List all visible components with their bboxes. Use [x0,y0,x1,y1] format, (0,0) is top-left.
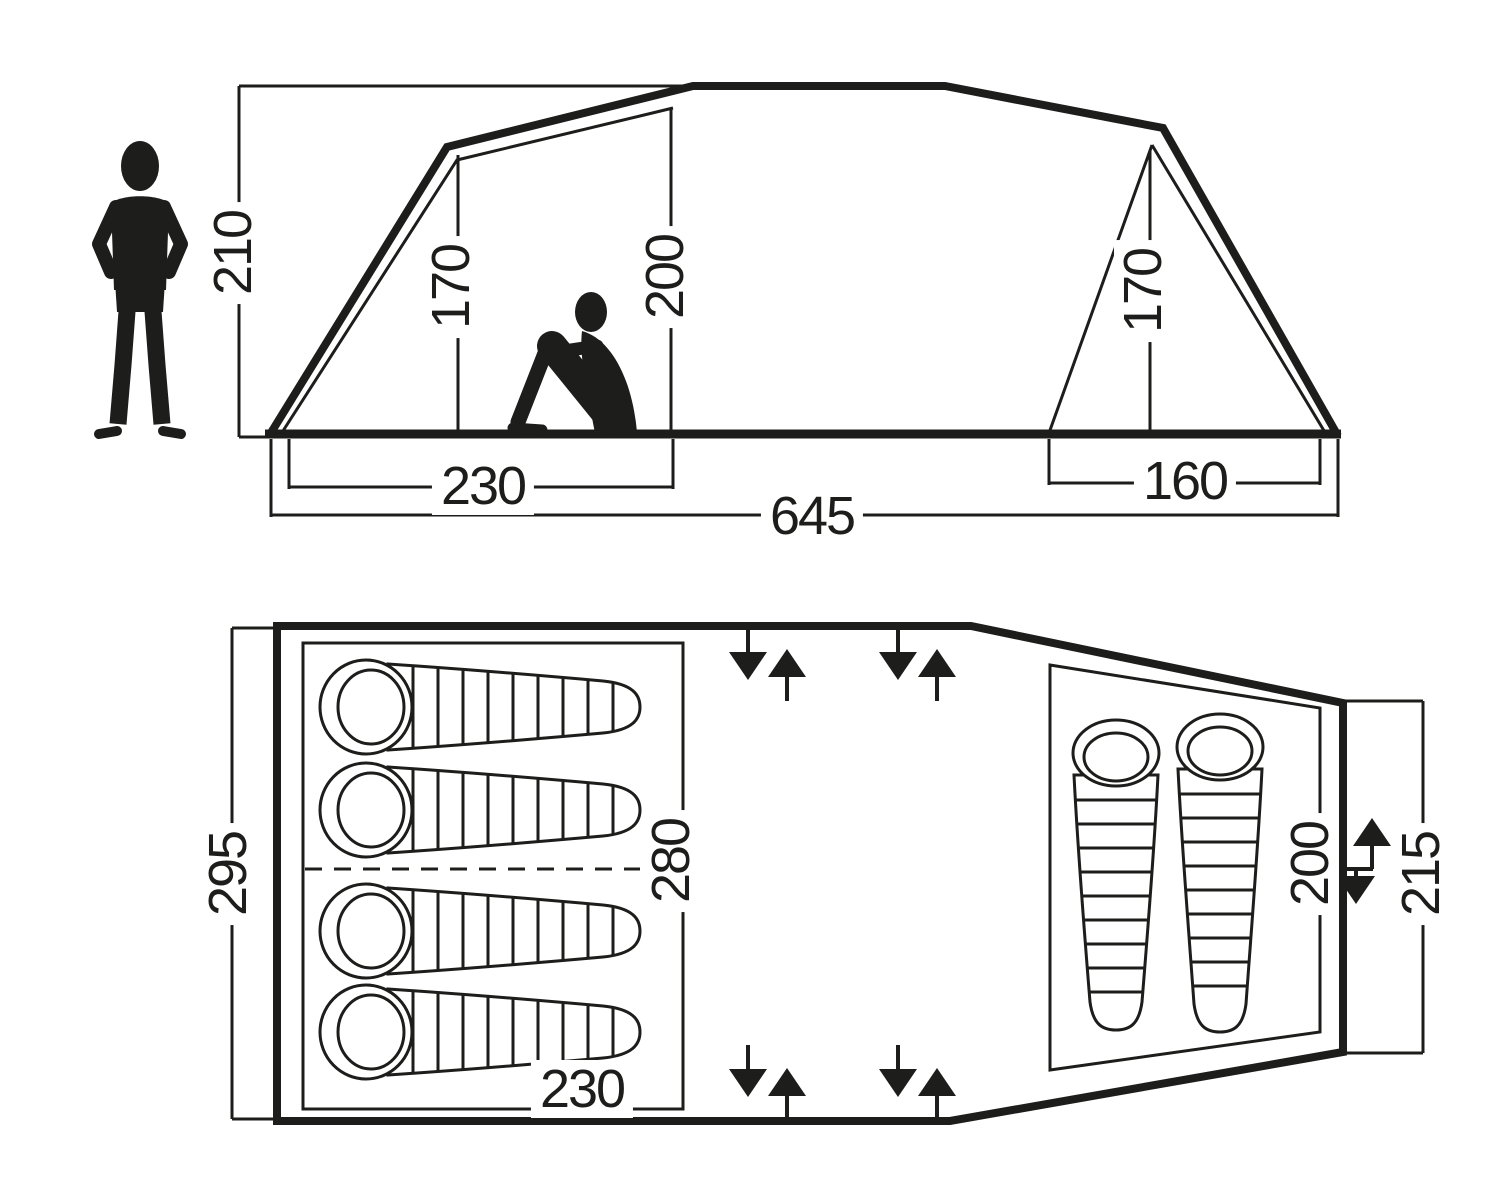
dim-label-floor-total-width: 295 [199,823,257,925]
sitting-arm [557,346,597,352]
bag-hood [320,985,412,1079]
person-figures [99,141,637,434]
sleeping-bag-horizontal [320,763,640,857]
tent-spec-diagram: 210 170 200 170 230 160 645 295 280 230 … [0,0,1500,1200]
arrow-head [768,1068,806,1096]
arrow-head [918,1068,956,1096]
diagram-canvas [0,0,1500,1200]
arrow-head [768,649,806,677]
bag-hood [320,884,412,978]
entrance-arrow-up [918,1068,956,1119]
sleeping-bag-horizontal [320,660,640,754]
entrance-arrow-up [1353,818,1391,869]
dim-label-floor-inner-width: 280 [642,810,700,912]
dim-label-right-room-height: 170 [1114,240,1172,342]
dim-label-inner-height: 200 [636,226,694,328]
sitting-shin [518,343,549,422]
dim-label-left-room-width: 230 [432,457,534,515]
person-standing [99,141,181,434]
sleeping-bag-horizontal [320,884,640,978]
dim-label-left-room-length: 230 [531,1060,633,1118]
standing-leg-right [152,298,162,424]
arrow-head [729,652,767,680]
standing-foot-right [163,431,181,434]
entrance-arrow-down [879,1045,917,1097]
dim-label-right-room-width: 160 [1134,452,1236,510]
standing-head [121,141,159,191]
dim-label-left-room-height: 170 [422,236,480,338]
entrance-arrow-down [729,626,767,680]
bag-hood [320,763,412,857]
dim-label-rear-wall-width: 215 [1392,823,1450,925]
person-sitting [513,292,637,433]
arrow-head [729,1069,767,1097]
arrow-head [879,1069,917,1097]
bag-hood [320,660,412,754]
standing-foot-left [99,431,117,434]
dim-label-total-height: 210 [204,202,262,304]
arrow-head [1353,818,1391,846]
entrance-arrow-down [729,1045,767,1097]
dim-label-right-room-length: 200 [1281,813,1339,915]
entrance-arrow-up [768,649,806,701]
sitting-head [575,292,607,332]
bag-body [1178,769,1262,1032]
standing-leg-left [118,298,128,424]
tent-inner-skin-right [1049,145,1326,434]
arrow-head [918,649,956,677]
dim-label-total-length: 645 [761,487,863,545]
sleeping-bag-vertical [1177,714,1263,1032]
entrance-arrow-up [768,1068,806,1119]
arrow-head [879,652,917,680]
entrance-arrow-up [918,649,956,701]
entrance-arrow-down [879,626,917,680]
sleeping-bag-vertical [1073,720,1159,1030]
sitting-foot [513,428,542,430]
